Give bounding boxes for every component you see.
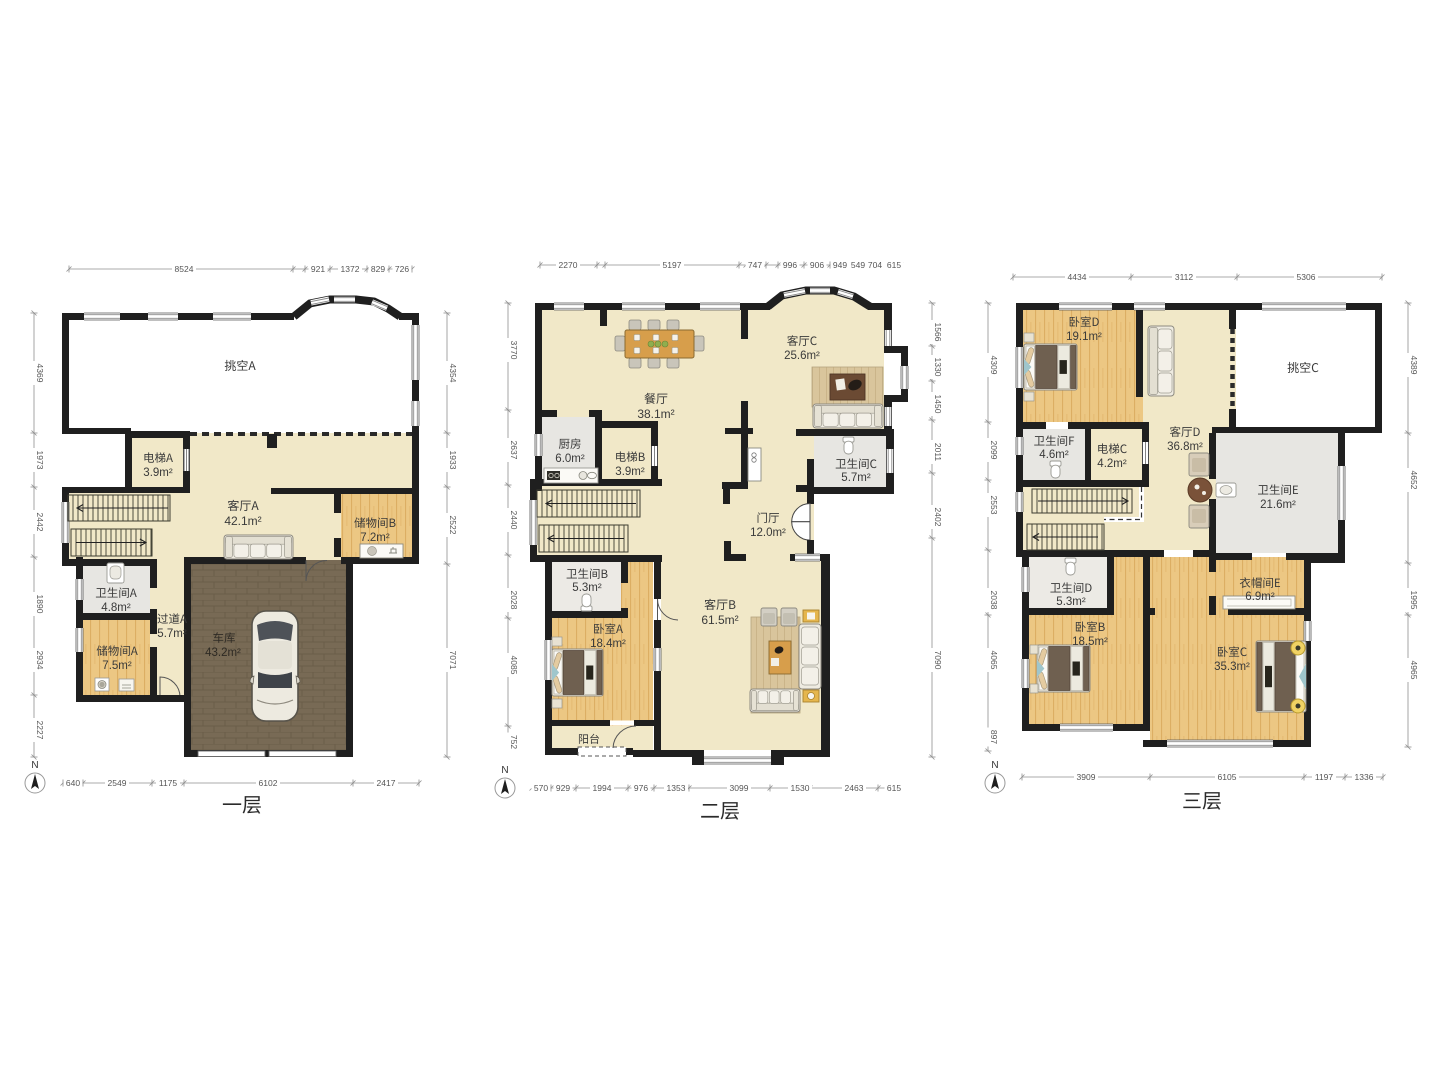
svg-text:1353: 1353 — [667, 783, 686, 793]
svg-text:829: 829 — [371, 264, 385, 274]
svg-text:7090: 7090 — [933, 651, 943, 670]
svg-text:4369: 4369 — [35, 364, 45, 383]
svg-text:4065: 4065 — [989, 651, 999, 670]
svg-text:1994: 1994 — [593, 783, 612, 793]
svg-text:1890: 1890 — [35, 595, 45, 614]
svg-text:7071: 7071 — [448, 651, 458, 670]
svg-text:5197: 5197 — [663, 260, 682, 270]
svg-text:35.3m²: 35.3m² — [1214, 661, 1250, 673]
svg-text:25.6m²: 25.6m² — [784, 350, 820, 362]
svg-text:2270: 2270 — [559, 260, 578, 270]
svg-text:1197: 1197 — [1315, 772, 1334, 782]
svg-text:2553: 2553 — [989, 496, 999, 515]
svg-text:5.3m²: 5.3m² — [1056, 596, 1086, 608]
svg-text:1530: 1530 — [791, 783, 810, 793]
svg-text:2637: 2637 — [509, 441, 519, 460]
svg-text:3112: 3112 — [1175, 272, 1194, 282]
svg-text:18.5m²: 18.5m² — [1072, 636, 1108, 648]
svg-text:5306: 5306 — [1297, 272, 1316, 282]
svg-text:4965: 4965 — [1409, 661, 1419, 680]
svg-text:1566: 1566 — [933, 323, 943, 342]
svg-text:3909: 3909 — [1077, 772, 1096, 782]
svg-text:3099: 3099 — [730, 783, 749, 793]
svg-text:906: 906 — [810, 260, 824, 270]
svg-text:N: N — [501, 765, 508, 776]
svg-text:747: 747 — [748, 260, 762, 270]
svg-text:61.5m²: 61.5m² — [701, 613, 738, 627]
svg-text:1450: 1450 — [933, 395, 943, 414]
svg-text:4389: 4389 — [1409, 356, 1419, 375]
svg-text:6.9m²: 6.9m² — [1245, 591, 1275, 603]
svg-text:3770: 3770 — [509, 341, 519, 360]
svg-text:2227: 2227 — [35, 721, 45, 740]
svg-text:2099: 2099 — [989, 441, 999, 460]
svg-text:996: 996 — [783, 260, 797, 270]
svg-text:704: 704 — [868, 260, 882, 270]
svg-text:6105: 6105 — [1218, 772, 1237, 782]
svg-text:4354: 4354 — [448, 364, 458, 383]
svg-text:5.7m²: 5.7m² — [841, 472, 871, 484]
svg-text:921: 921 — [311, 264, 325, 274]
svg-text:2463: 2463 — [845, 783, 864, 793]
svg-text:1995: 1995 — [1409, 591, 1419, 610]
svg-text:949: 949 — [833, 260, 847, 270]
svg-text:4.2m²: 4.2m² — [1097, 458, 1127, 470]
svg-text:726: 726 — [395, 264, 409, 274]
svg-text:897: 897 — [989, 730, 999, 744]
svg-text:5.3m²: 5.3m² — [572, 582, 602, 594]
svg-text:549: 549 — [851, 260, 865, 270]
svg-text:36.8m²: 36.8m² — [1167, 441, 1203, 453]
svg-text:1175: 1175 — [159, 778, 178, 788]
svg-text:7.5m²: 7.5m² — [102, 660, 132, 672]
svg-text:4.6m²: 4.6m² — [1039, 449, 1069, 461]
svg-text:2934: 2934 — [35, 651, 45, 670]
svg-text:N: N — [31, 760, 38, 771]
svg-text:1330: 1330 — [933, 358, 943, 377]
svg-text:18.4m²: 18.4m² — [590, 638, 626, 650]
svg-text:615: 615 — [887, 783, 901, 793]
svg-text:42.1m²: 42.1m² — [224, 514, 261, 528]
svg-text:570: 570 — [534, 783, 548, 793]
svg-text:43.2m²: 43.2m² — [205, 647, 241, 659]
svg-text:4085: 4085 — [509, 656, 519, 675]
svg-text:6.0m²: 6.0m² — [555, 453, 585, 465]
svg-text:2011: 2011 — [933, 443, 943, 462]
svg-text:4.8m²: 4.8m² — [101, 602, 131, 614]
svg-text:38.1m²: 38.1m² — [637, 407, 674, 421]
svg-text:6102: 6102 — [259, 778, 278, 788]
svg-text:929: 929 — [556, 783, 570, 793]
svg-text:5.7m²: 5.7m² — [157, 628, 187, 640]
svg-text:976: 976 — [634, 783, 648, 793]
svg-text:21.6m²: 21.6m² — [1260, 499, 1296, 511]
svg-text:1973: 1973 — [35, 451, 45, 470]
svg-text:19.1m²: 19.1m² — [1066, 331, 1102, 343]
svg-text:640: 640 — [66, 778, 80, 788]
svg-text:1372: 1372 — [341, 264, 360, 274]
svg-text:12.0m²: 12.0m² — [750, 527, 786, 539]
svg-text:2440: 2440 — [509, 511, 519, 530]
svg-text:1336: 1336 — [1355, 772, 1374, 782]
svg-text:4309: 4309 — [989, 356, 999, 375]
svg-text:3.9m²: 3.9m² — [143, 467, 173, 479]
svg-text:2028: 2028 — [509, 591, 519, 610]
svg-text:3.9m²: 3.9m² — [615, 466, 645, 478]
svg-text:2442: 2442 — [35, 513, 45, 532]
svg-text:1933: 1933 — [448, 451, 458, 470]
svg-text:2402: 2402 — [933, 508, 943, 527]
svg-text:615: 615 — [887, 260, 901, 270]
svg-text:2549: 2549 — [108, 778, 127, 788]
svg-text:2038: 2038 — [989, 591, 999, 610]
svg-text:7.2m²: 7.2m² — [360, 532, 390, 544]
svg-text:2522: 2522 — [448, 516, 458, 535]
svg-text:752: 752 — [509, 735, 519, 749]
svg-text:4652: 4652 — [1409, 471, 1419, 490]
svg-text:N: N — [991, 760, 998, 771]
svg-text:4434: 4434 — [1068, 272, 1087, 282]
svg-text:8524: 8524 — [175, 264, 194, 274]
svg-text:2417: 2417 — [377, 778, 396, 788]
